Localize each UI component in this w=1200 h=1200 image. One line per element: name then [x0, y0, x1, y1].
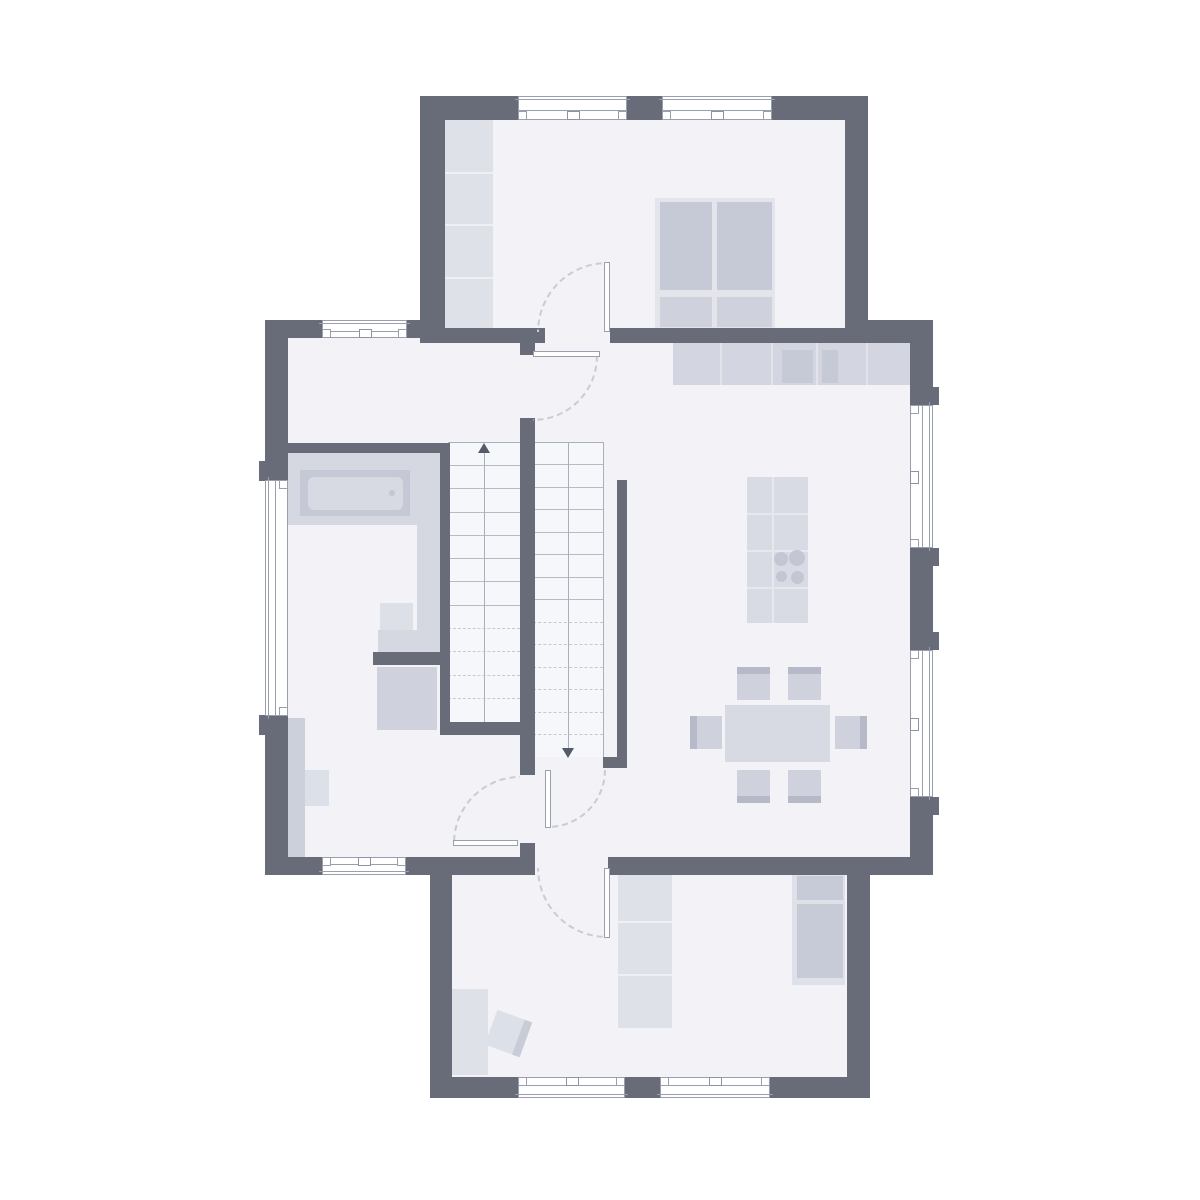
window-left-wall-midline — [275, 481, 276, 715]
kitchen-counter-part — [816, 343, 818, 385]
door-utility-leaf — [604, 868, 610, 938]
double-bed-part — [660, 297, 712, 327]
window-hall-top-vent-square — [359, 329, 372, 338]
bedroom-wardrobe-part — [440, 172, 493, 174]
utility-wardrobe — [618, 875, 672, 1028]
kitchen-island-part — [747, 587, 808, 589]
utility-wall-bottom-3 — [770, 1077, 870, 1098]
bath-basin-counter — [378, 630, 440, 652]
door-bedroom-leaf — [604, 262, 610, 332]
bath-partition — [373, 652, 450, 665]
window-utility-bottom-1-cap-right — [616, 1077, 625, 1086]
window-right-wall-2 — [910, 650, 933, 797]
kitchen-island-burner — [774, 552, 788, 566]
dining-table — [725, 705, 830, 762]
window-bedroom-top-2-sill — [659, 99, 775, 100]
window-hall-top-sill — [319, 323, 410, 324]
window-utility-bottom-1-vent-square — [566, 1077, 579, 1086]
kitchen-wall-top — [845, 320, 933, 343]
bathtub — [300, 470, 410, 516]
dining-chair-left — [690, 716, 722, 749]
jamb-nub-right-1 — [933, 387, 939, 405]
stair-guide-down — [568, 442, 569, 748]
main-wall-bottom-2 — [406, 857, 535, 875]
dining-chair-bottom-left — [737, 770, 770, 803]
hall-wall-top-1 — [265, 320, 322, 338]
window-utility-bottom-2-cap-left — [660, 1077, 669, 1086]
bedroom-wardrobe-part — [440, 277, 493, 279]
window-right-wall-1 — [910, 405, 933, 548]
dining-chair-bottom-right-part — [788, 796, 821, 803]
double-bed-part — [717, 297, 772, 327]
bedroom-wardrobe-part — [440, 224, 493, 226]
window-right-wall-1-sill — [929, 402, 930, 551]
kitchen-island-burner — [791, 571, 804, 584]
window-main-bottom-cap-right — [397, 857, 406, 866]
utility-cabinet-part — [797, 876, 843, 900]
window-right-wall-1-vent-square — [910, 471, 919, 484]
stair-arrow-up — [478, 443, 490, 453]
door-kitchen-leaf — [533, 351, 600, 357]
double-bed-part — [717, 202, 772, 290]
stair-guide-up — [484, 450, 485, 722]
jamb-nub-left-2 — [259, 715, 265, 735]
bath-wall-top — [265, 443, 450, 453]
kitchen-counter-part — [771, 343, 773, 385]
utility-wall-right — [847, 875, 870, 1098]
kitchen-counter-part — [720, 343, 722, 385]
dining-chair-top-right-part — [788, 667, 821, 674]
kitchen-island-part — [772, 477, 774, 623]
window-main-bottom-cap-left — [322, 857, 331, 866]
window-left-wall-sill — [268, 477, 269, 719]
main-wall-left-upper — [265, 338, 288, 480]
window-utility-bottom-1 — [518, 1077, 625, 1098]
window-utility-bottom-1-sill — [515, 1094, 628, 1095]
bath-basin — [380, 603, 413, 630]
window-right-wall-2-cap-top — [910, 650, 919, 659]
bedroom-wardrobe — [440, 120, 493, 328]
main-wall-right-1 — [910, 343, 933, 405]
window-bedroom-top-2-cap-right — [763, 111, 772, 120]
kitchen-counter — [673, 343, 910, 385]
window-left-wall-cap-top — [279, 480, 288, 489]
door-stair-hall-leaf — [545, 770, 551, 828]
window-right-wall-2-midline — [922, 651, 923, 796]
hall-wall-top-2 — [407, 320, 440, 338]
floor-bedroom — [445, 120, 845, 330]
bedroom-wall-top-3 — [772, 96, 868, 120]
utility-wardrobe-part — [618, 974, 672, 976]
bedroom-wall-left — [420, 120, 445, 343]
main-wall-left-lower — [265, 716, 288, 857]
spine-stub-bottom — [520, 843, 535, 857]
window-main-bottom — [322, 857, 406, 875]
utility-wall-bottom-1 — [430, 1077, 518, 1098]
window-bedroom-top-1-cap-right — [618, 111, 627, 120]
window-utility-bottom-2-cap-right — [761, 1077, 770, 1086]
dining-chair-bottom-right — [788, 770, 821, 803]
jamb-nub-right-4 — [933, 797, 939, 815]
utility-cabinet — [792, 875, 845, 985]
main-wall-right-2 — [910, 548, 933, 650]
kitchen-side-wall-foot — [603, 757, 627, 768]
bedroom-wall-bottom-2 — [610, 328, 868, 343]
kitchen-island-burner — [776, 571, 787, 582]
bathtub-burner — [389, 490, 395, 496]
jamb-nub-right-2 — [933, 548, 939, 566]
window-bedroom-top-2 — [662, 96, 772, 120]
window-left-wall-cap-bottom — [279, 707, 288, 716]
main-wall-right-3 — [910, 797, 933, 857]
window-hall-top — [322, 320, 407, 338]
shower — [377, 667, 437, 730]
jamb-nub-right-3 — [933, 632, 939, 650]
window-main-bottom-vent-square — [358, 857, 371, 866]
bath-sideboard — [288, 718, 305, 857]
window-hall-top-cap-left — [322, 329, 331, 338]
spine-wall — [520, 418, 535, 775]
dining-chair-top-left-part — [737, 667, 770, 674]
kitchen-counter-part — [822, 350, 838, 383]
bedroom-wall-top-1 — [420, 96, 518, 120]
bath-sideboard-box — [305, 770, 329, 806]
window-right-wall-1-midline — [922, 406, 923, 547]
window-utility-bottom-2 — [660, 1077, 770, 1098]
window-right-wall-1-cap-bottom — [910, 539, 919, 548]
window-right-wall-2-cap-bottom — [910, 788, 919, 797]
window-right-wall-1-cap-top — [910, 405, 919, 414]
kitchen-island-part — [747, 513, 808, 515]
window-bedroom-top-1-vent-square — [567, 111, 580, 120]
dining-chair-right — [835, 716, 867, 749]
stair-outline-right — [603, 442, 604, 758]
window-left-wall — [265, 480, 288, 716]
utility-wall-left — [430, 875, 452, 1098]
utility-cabinet-part — [797, 904, 843, 978]
dining-chair-right-part — [860, 716, 867, 749]
window-bedroom-top-1-cap-left — [518, 111, 527, 120]
kitchen-side-wall — [617, 480, 627, 757]
window-hall-top-cap-right — [398, 329, 407, 338]
window-utility-bottom-2-vent-square — [709, 1077, 722, 1086]
double-bed-part — [660, 202, 712, 290]
jamb-nub-left-1 — [259, 461, 265, 481]
double-bed — [655, 198, 775, 330]
dining-chair-bottom-left-part — [737, 796, 770, 803]
window-right-wall-2-sill — [929, 647, 930, 800]
window-utility-bottom-1-cap-left — [518, 1077, 527, 1086]
window-right-wall-2-vent-square — [910, 718, 919, 731]
window-utility-bottom-2-sill — [657, 1094, 773, 1095]
utility-wardrobe-part — [618, 921, 672, 923]
window-main-bottom-sill — [319, 871, 409, 872]
door-bathroom-leaf — [453, 840, 518, 846]
kitchen-counter-part — [866, 343, 868, 385]
dining-chair-left-part — [690, 716, 697, 749]
window-bedroom-top-1-sill — [515, 99, 630, 100]
floor-plan-canvas — [0, 0, 1200, 1200]
window-bedroom-top-2-vent-square — [711, 111, 724, 120]
kitchen-counter-part — [782, 350, 813, 383]
kitchen-island-burner — [789, 550, 805, 566]
dining-chair-top-right — [788, 667, 821, 700]
window-bedroom-top-2-cap-left — [662, 111, 671, 120]
stair-arrow-down — [562, 748, 574, 758]
window-bedroom-top-1 — [518, 96, 627, 120]
main-wall-bottom-3 — [608, 857, 933, 875]
kitchen-island — [747, 477, 808, 623]
bedroom-wall-top-2 — [627, 96, 662, 120]
bedroom-wall-right — [845, 120, 868, 343]
main-wall-bottom-1 — [265, 857, 322, 875]
dining-chair-top-left — [737, 667, 770, 700]
stair-wall-left — [440, 453, 450, 735]
utility-wall-bottom-2 — [625, 1077, 660, 1098]
